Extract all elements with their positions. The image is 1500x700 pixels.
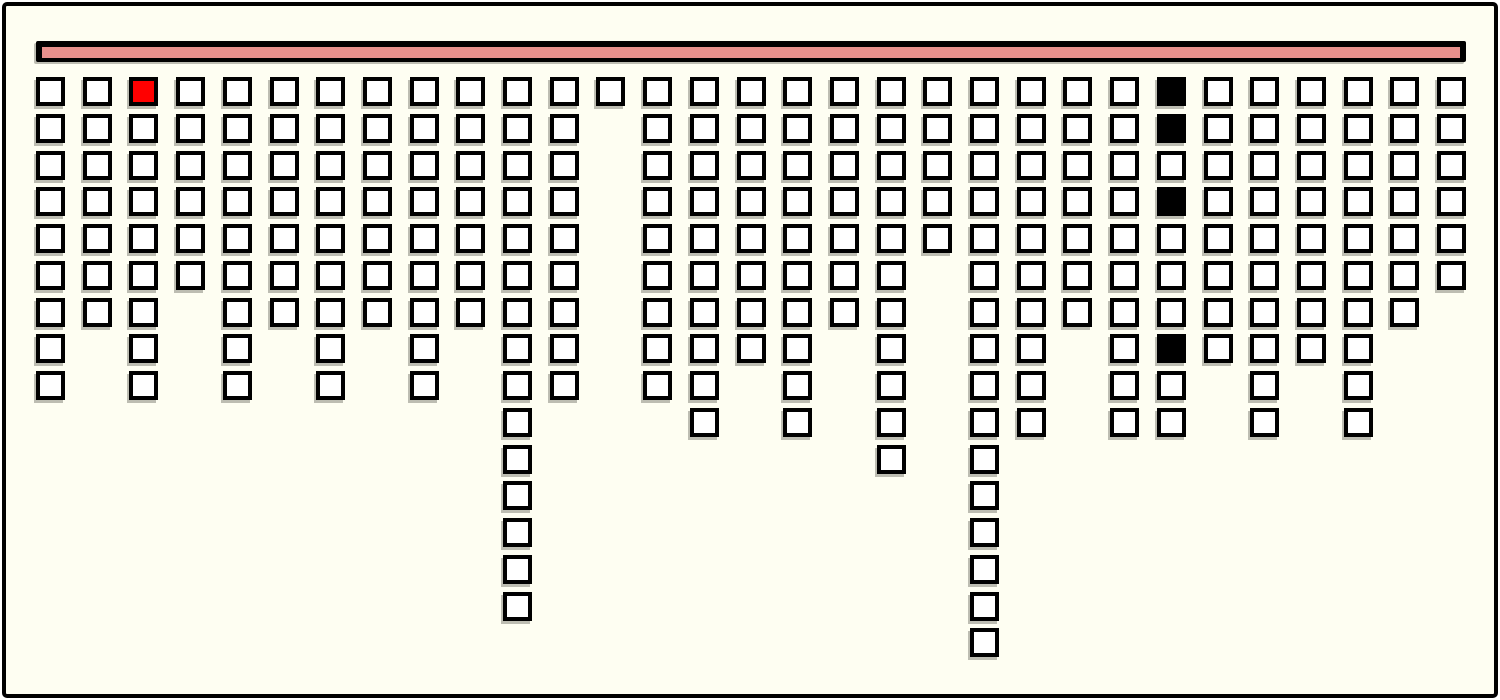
grid-square bbox=[223, 114, 252, 143]
grid-square bbox=[456, 151, 485, 180]
grid-square bbox=[1390, 151, 1419, 180]
grid-square bbox=[503, 187, 532, 216]
grid-square bbox=[129, 371, 158, 400]
grid-square bbox=[970, 592, 999, 621]
grid-square bbox=[830, 224, 859, 253]
grid-square bbox=[783, 371, 812, 400]
grid-square bbox=[36, 114, 65, 143]
grid-square bbox=[970, 151, 999, 180]
grid-square bbox=[643, 261, 672, 290]
grid-square bbox=[970, 371, 999, 400]
grid-square bbox=[1110, 77, 1139, 106]
grid-square bbox=[1204, 187, 1233, 216]
grid-square bbox=[1250, 114, 1279, 143]
grid-square bbox=[129, 187, 158, 216]
grid-square bbox=[83, 224, 112, 253]
grid-square bbox=[690, 334, 719, 363]
grid-square bbox=[1344, 77, 1373, 106]
grid-square bbox=[1344, 334, 1373, 363]
grid-square bbox=[1017, 224, 1046, 253]
grid-square bbox=[176, 151, 205, 180]
grid-square bbox=[1204, 298, 1233, 327]
grid-square bbox=[877, 187, 906, 216]
grid-square bbox=[503, 518, 532, 547]
grid-square bbox=[1390, 77, 1419, 106]
grid-square bbox=[456, 224, 485, 253]
grid-square bbox=[1297, 114, 1326, 143]
grid-square bbox=[877, 334, 906, 363]
grid-square bbox=[176, 261, 205, 290]
grid-square bbox=[316, 187, 345, 216]
grid-square bbox=[643, 224, 672, 253]
grid-square bbox=[36, 224, 65, 253]
grid-square bbox=[223, 261, 252, 290]
grid-square bbox=[503, 77, 532, 106]
grid-square bbox=[830, 298, 859, 327]
grid-square bbox=[877, 224, 906, 253]
grid-square bbox=[1297, 224, 1326, 253]
grid-square bbox=[1063, 298, 1092, 327]
grid-square bbox=[783, 334, 812, 363]
grid-square bbox=[410, 261, 439, 290]
grid-square bbox=[1110, 334, 1139, 363]
black-square bbox=[1157, 114, 1186, 143]
grid-square bbox=[1157, 408, 1186, 437]
grid-square bbox=[783, 261, 812, 290]
grid-square bbox=[550, 224, 579, 253]
grid-square bbox=[970, 334, 999, 363]
grid-square bbox=[783, 114, 812, 143]
grid-square bbox=[270, 114, 299, 143]
grid-square bbox=[129, 298, 158, 327]
grid-square bbox=[83, 187, 112, 216]
grid-square bbox=[1437, 261, 1466, 290]
grid-square bbox=[643, 114, 672, 143]
grid-square bbox=[643, 151, 672, 180]
grid-square bbox=[316, 151, 345, 180]
grid-square bbox=[877, 298, 906, 327]
grid-square bbox=[316, 371, 345, 400]
grid-square bbox=[1017, 371, 1046, 400]
grid-square bbox=[737, 151, 766, 180]
grid-square bbox=[36, 261, 65, 290]
grid-square bbox=[877, 408, 906, 437]
grid-square bbox=[129, 224, 158, 253]
grid-square bbox=[1297, 261, 1326, 290]
grid-square bbox=[270, 298, 299, 327]
grid-square bbox=[1437, 77, 1466, 106]
grid-square bbox=[270, 224, 299, 253]
grid-square bbox=[1297, 77, 1326, 106]
grid-square bbox=[737, 187, 766, 216]
grid-square bbox=[456, 298, 485, 327]
grid-square bbox=[1250, 371, 1279, 400]
grid-square bbox=[363, 224, 392, 253]
grid-square bbox=[129, 261, 158, 290]
grid-square bbox=[1250, 408, 1279, 437]
grid-square bbox=[83, 77, 112, 106]
grid-square bbox=[877, 114, 906, 143]
grid-square bbox=[550, 371, 579, 400]
grid-square bbox=[877, 261, 906, 290]
grid-square bbox=[970, 445, 999, 474]
grid-square bbox=[270, 261, 299, 290]
grid-square bbox=[503, 408, 532, 437]
grid-square bbox=[783, 151, 812, 180]
grid-square bbox=[176, 114, 205, 143]
grid-square bbox=[503, 371, 532, 400]
grid-square bbox=[690, 371, 719, 400]
grid-square bbox=[737, 224, 766, 253]
grid-square bbox=[36, 77, 65, 106]
grid-square bbox=[1250, 77, 1279, 106]
grid-square bbox=[176, 77, 205, 106]
grid-square bbox=[643, 77, 672, 106]
grid-square bbox=[456, 114, 485, 143]
grid-square bbox=[1204, 224, 1233, 253]
grid-square bbox=[83, 151, 112, 180]
grid-square bbox=[363, 151, 392, 180]
grid-square bbox=[503, 592, 532, 621]
grid-square bbox=[877, 445, 906, 474]
grid-square bbox=[363, 298, 392, 327]
grid-square bbox=[410, 77, 439, 106]
grid-square bbox=[1017, 187, 1046, 216]
grid-square bbox=[1017, 261, 1046, 290]
grid-square bbox=[363, 77, 392, 106]
grid-square bbox=[643, 187, 672, 216]
grid-square bbox=[36, 371, 65, 400]
grid-square bbox=[690, 187, 719, 216]
grid-square bbox=[503, 261, 532, 290]
grid-square bbox=[877, 77, 906, 106]
grid-square bbox=[783, 408, 812, 437]
grid-square bbox=[316, 334, 345, 363]
grid-square bbox=[970, 555, 999, 584]
grid-square bbox=[1063, 77, 1092, 106]
grid-square bbox=[830, 187, 859, 216]
grid-square bbox=[970, 628, 999, 657]
grid-square bbox=[456, 187, 485, 216]
grid-square bbox=[83, 261, 112, 290]
grid-square bbox=[1017, 77, 1046, 106]
grid-square bbox=[316, 261, 345, 290]
grid-square bbox=[223, 77, 252, 106]
grid-square bbox=[363, 187, 392, 216]
grid-square bbox=[456, 77, 485, 106]
grid-square bbox=[1437, 114, 1466, 143]
grid-square bbox=[1250, 298, 1279, 327]
grid-square bbox=[503, 445, 532, 474]
grid-square bbox=[316, 224, 345, 253]
grid-square bbox=[1204, 261, 1233, 290]
grid-square bbox=[36, 187, 65, 216]
grid-square bbox=[1250, 187, 1279, 216]
grid-square bbox=[1063, 114, 1092, 143]
grid-square bbox=[410, 298, 439, 327]
grid-square bbox=[270, 187, 299, 216]
grid-square bbox=[1344, 224, 1373, 253]
grid-square bbox=[1110, 371, 1139, 400]
grid-square bbox=[643, 298, 672, 327]
grid-square bbox=[830, 261, 859, 290]
grid-square bbox=[1157, 261, 1186, 290]
grid-square bbox=[36, 298, 65, 327]
grid-square bbox=[1110, 408, 1139, 437]
grid-square bbox=[176, 224, 205, 253]
grid-square bbox=[1157, 151, 1186, 180]
grid-square bbox=[690, 261, 719, 290]
grid-square bbox=[737, 298, 766, 327]
grid-square bbox=[456, 261, 485, 290]
grid-square bbox=[923, 224, 952, 253]
grid-square bbox=[643, 334, 672, 363]
grid-square bbox=[1204, 151, 1233, 180]
grid-square bbox=[503, 114, 532, 143]
grid-square bbox=[1157, 224, 1186, 253]
grid-square bbox=[830, 151, 859, 180]
grid-square bbox=[1110, 298, 1139, 327]
grid-square bbox=[1390, 261, 1419, 290]
grid-square bbox=[503, 298, 532, 327]
grid-square bbox=[737, 334, 766, 363]
grid-square bbox=[129, 334, 158, 363]
grid-square bbox=[410, 151, 439, 180]
grid-square bbox=[550, 187, 579, 216]
grid-square bbox=[270, 151, 299, 180]
grid-square bbox=[410, 224, 439, 253]
grid-square bbox=[1110, 151, 1139, 180]
grid-square bbox=[1344, 187, 1373, 216]
grid-square bbox=[1250, 151, 1279, 180]
grid-square bbox=[1390, 114, 1419, 143]
grid-square bbox=[1063, 224, 1092, 253]
grid-square bbox=[830, 77, 859, 106]
grid-square bbox=[783, 298, 812, 327]
grid-square bbox=[1437, 151, 1466, 180]
grid-square bbox=[129, 151, 158, 180]
grid-square bbox=[410, 187, 439, 216]
grid-square bbox=[690, 224, 719, 253]
grid-square bbox=[596, 77, 625, 106]
grid-square bbox=[1297, 334, 1326, 363]
grid-square bbox=[503, 481, 532, 510]
grid-square bbox=[970, 261, 999, 290]
grid-square bbox=[270, 77, 299, 106]
grid-square bbox=[410, 334, 439, 363]
grid-square bbox=[690, 151, 719, 180]
grid-square bbox=[1390, 298, 1419, 327]
grid-square bbox=[36, 151, 65, 180]
black-square bbox=[1157, 187, 1186, 216]
grid-square bbox=[223, 151, 252, 180]
grid-square bbox=[970, 77, 999, 106]
grid-square bbox=[1204, 77, 1233, 106]
grid-square bbox=[1063, 261, 1092, 290]
grid-square bbox=[1297, 151, 1326, 180]
grid-square bbox=[1390, 187, 1419, 216]
grid-square bbox=[1204, 334, 1233, 363]
grid-square bbox=[1063, 187, 1092, 216]
grid-square bbox=[1344, 371, 1373, 400]
grid-square bbox=[970, 224, 999, 253]
grid-square bbox=[923, 114, 952, 143]
grid-square bbox=[1017, 151, 1046, 180]
grid-square bbox=[550, 261, 579, 290]
grid-square bbox=[690, 408, 719, 437]
grid-square bbox=[83, 114, 112, 143]
grid-square bbox=[1344, 114, 1373, 143]
grid-square bbox=[923, 187, 952, 216]
grid-square bbox=[1437, 224, 1466, 253]
grid-square bbox=[223, 298, 252, 327]
grid-square bbox=[316, 114, 345, 143]
grid-square bbox=[1063, 151, 1092, 180]
grid-square bbox=[1250, 224, 1279, 253]
main-panel bbox=[2, 2, 1498, 698]
grid-square bbox=[1157, 298, 1186, 327]
grid-square bbox=[690, 114, 719, 143]
grid-square bbox=[83, 298, 112, 327]
grid-square bbox=[1110, 187, 1139, 216]
black-square bbox=[1157, 334, 1186, 363]
grid-square bbox=[970, 518, 999, 547]
grid-square bbox=[1344, 298, 1373, 327]
grid-square bbox=[830, 114, 859, 143]
grid-square bbox=[316, 298, 345, 327]
grid-square bbox=[970, 187, 999, 216]
grid-square bbox=[1390, 224, 1419, 253]
grid-square bbox=[550, 151, 579, 180]
grid-square bbox=[176, 187, 205, 216]
grid-square bbox=[783, 187, 812, 216]
grid-square bbox=[1017, 334, 1046, 363]
grid-square bbox=[503, 555, 532, 584]
grid-square bbox=[690, 77, 719, 106]
grid-square bbox=[923, 151, 952, 180]
grid-square bbox=[503, 224, 532, 253]
icicle-grid bbox=[6, 6, 1494, 694]
grid-square bbox=[1297, 298, 1326, 327]
grid-square bbox=[1110, 114, 1139, 143]
grid-square bbox=[877, 151, 906, 180]
grid-square bbox=[1437, 187, 1466, 216]
grid-square bbox=[129, 114, 158, 143]
grid-square bbox=[1157, 371, 1186, 400]
grid-square bbox=[970, 408, 999, 437]
grid-square bbox=[783, 77, 812, 106]
grid-square bbox=[410, 371, 439, 400]
grid-square bbox=[970, 481, 999, 510]
grid-square bbox=[550, 77, 579, 106]
grid-square bbox=[1017, 408, 1046, 437]
grid-square bbox=[223, 187, 252, 216]
grid-square bbox=[550, 334, 579, 363]
grid-square bbox=[737, 114, 766, 143]
grid-square bbox=[363, 114, 392, 143]
grid-square bbox=[36, 334, 65, 363]
grid-square bbox=[1017, 114, 1046, 143]
grid-square bbox=[970, 114, 999, 143]
grid-square bbox=[923, 77, 952, 106]
grid-square bbox=[223, 371, 252, 400]
grid-square bbox=[410, 114, 439, 143]
grid-square bbox=[1344, 261, 1373, 290]
grid-square bbox=[503, 151, 532, 180]
black-square bbox=[1157, 77, 1186, 106]
grid-square bbox=[737, 261, 766, 290]
grid-square bbox=[1344, 151, 1373, 180]
grid-square bbox=[1250, 261, 1279, 290]
grid-square bbox=[223, 334, 252, 363]
grid-square bbox=[643, 371, 672, 400]
grid-square bbox=[363, 261, 392, 290]
grid-square bbox=[690, 298, 719, 327]
grid-square bbox=[503, 334, 532, 363]
grid-square bbox=[877, 371, 906, 400]
grid-square bbox=[783, 224, 812, 253]
grid-square bbox=[1297, 187, 1326, 216]
grid-square bbox=[550, 298, 579, 327]
grid-square bbox=[737, 77, 766, 106]
grid-square bbox=[1110, 261, 1139, 290]
grid-square bbox=[1250, 334, 1279, 363]
grid-square bbox=[550, 114, 579, 143]
grid-square bbox=[1017, 298, 1046, 327]
grid-square bbox=[970, 298, 999, 327]
grid-square bbox=[223, 224, 252, 253]
red-square bbox=[129, 77, 158, 106]
grid-square bbox=[1204, 114, 1233, 143]
grid-square bbox=[1344, 408, 1373, 437]
grid-square bbox=[316, 77, 345, 106]
grid-square bbox=[1110, 224, 1139, 253]
